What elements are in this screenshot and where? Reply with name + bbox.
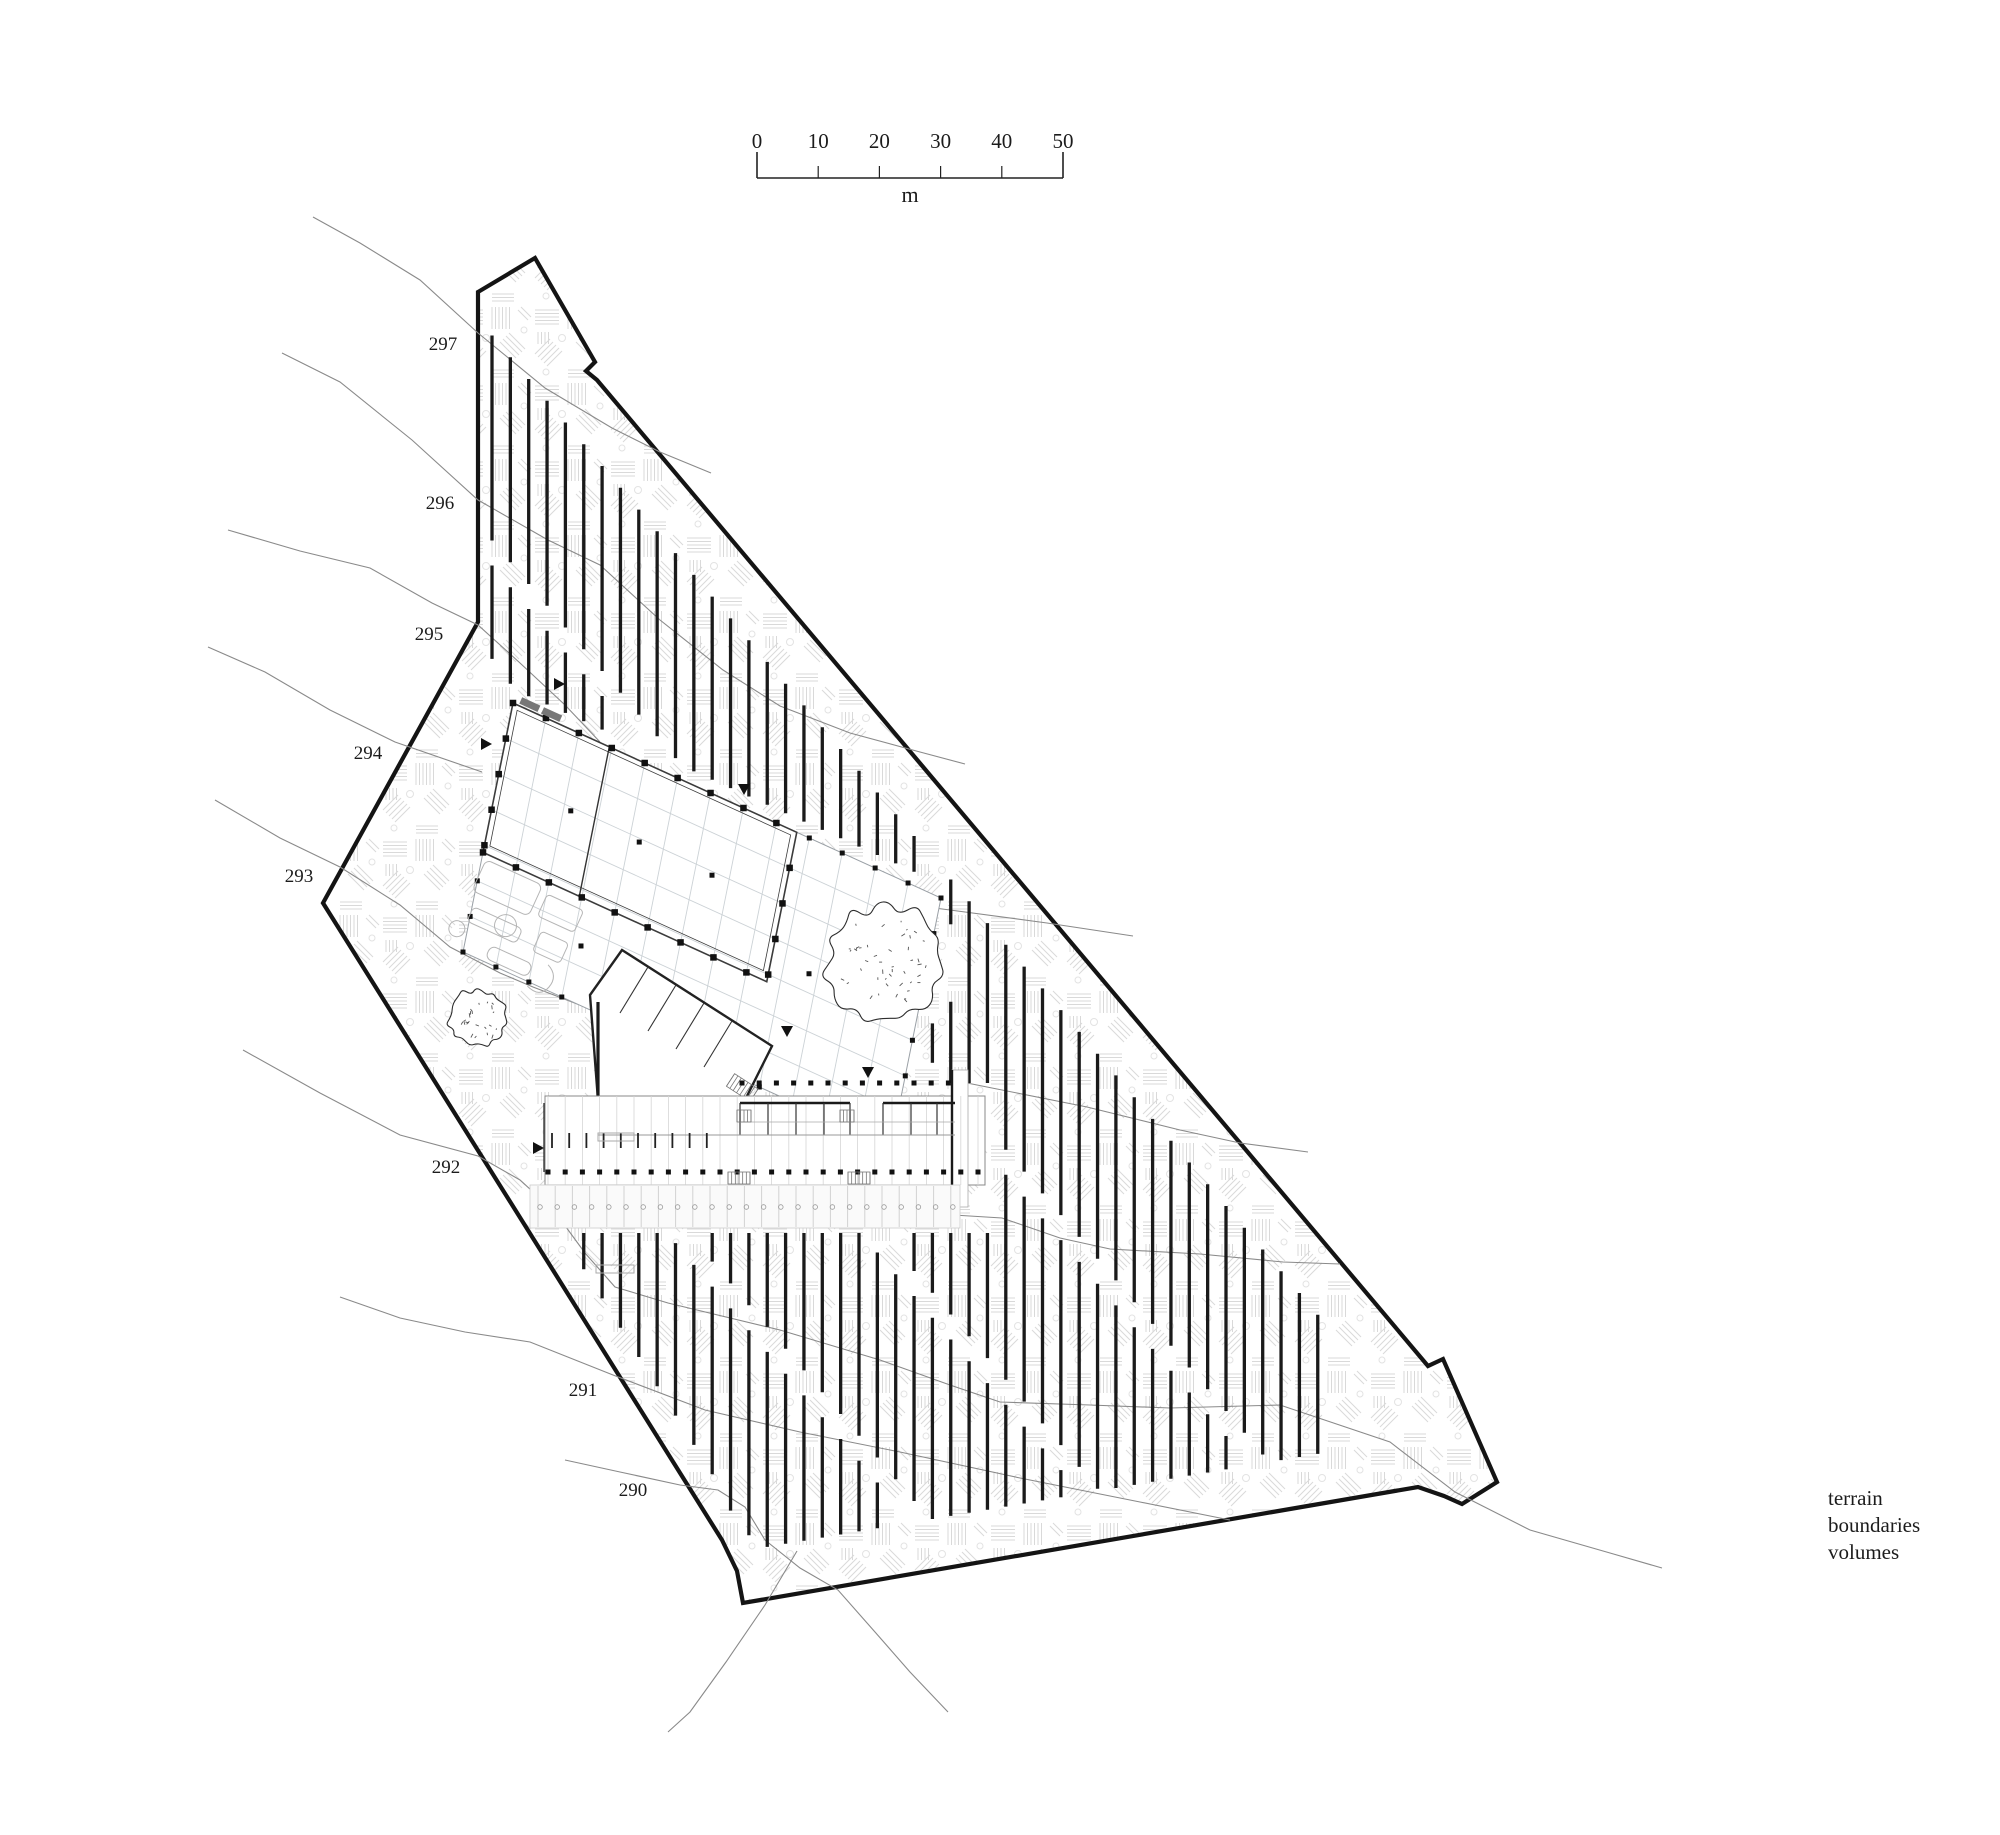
scale-tick-40: 40 (991, 129, 1012, 153)
scale-tick-20: 20 (869, 129, 890, 153)
scale-tick-0: 0 (752, 129, 763, 153)
legend: terrain boundaries volumes (1828, 1486, 1920, 1564)
contour-label-297: 297 (429, 334, 458, 355)
site-plan-sheet: 0 10 20 30 40 50 m 297 296 295 294 293 2… (0, 0, 2000, 1835)
terrace-band (530, 1185, 960, 1228)
contour-label-296: 296 (426, 493, 455, 514)
site-plan-drawing: 0 10 20 30 40 50 m 297 296 295 294 293 2… (0, 0, 2000, 1835)
contour-label-295: 295 (415, 624, 444, 645)
legend-item-terrain: terrain (1828, 1486, 1883, 1510)
legend-item-boundaries: boundaries (1828, 1513, 1920, 1537)
scale-tick-10: 10 (808, 129, 829, 153)
scale-bar-labels: 0 10 20 30 40 50 m (752, 129, 1074, 207)
contour-label-292: 292 (432, 1157, 461, 1178)
contour-label-290: 290 (619, 1480, 648, 1501)
scale-bar (757, 152, 1063, 178)
contour-label-294: 294 (354, 743, 383, 764)
scale-unit: m (901, 182, 918, 207)
legend-item-volumes: volumes (1828, 1540, 1899, 1564)
scale-tick-30: 30 (930, 129, 951, 153)
contour-label-291: 291 (569, 1380, 598, 1401)
scale-tick-50: 50 (1053, 129, 1074, 153)
contour-label-293: 293 (285, 866, 314, 887)
